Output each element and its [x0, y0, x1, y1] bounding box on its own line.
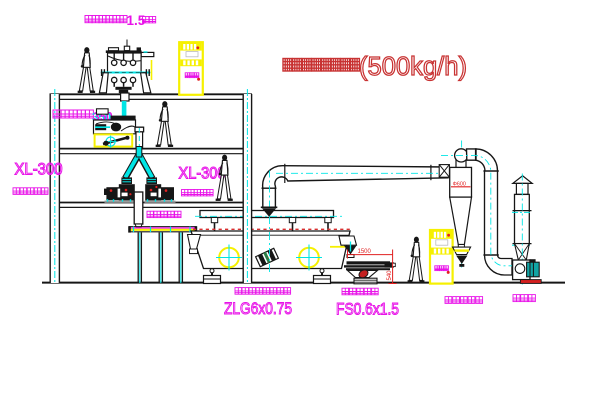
- svg-text:XL-300: XL-300: [179, 165, 226, 183]
- svg-text:(500kg/h): (500kg/h): [359, 53, 467, 81]
- svg-text:XL-300: XL-300: [15, 161, 63, 179]
- svg-text:1500: 1500: [358, 249, 372, 255]
- svg-text:ZLG6x0.75: ZLG6x0.75: [224, 299, 292, 318]
- svg-text:FS0.6x1.5: FS0.6x1.5: [336, 300, 399, 319]
- svg-text:Φ600: Φ600: [453, 182, 466, 188]
- svg-text:540: 540: [387, 270, 393, 281]
